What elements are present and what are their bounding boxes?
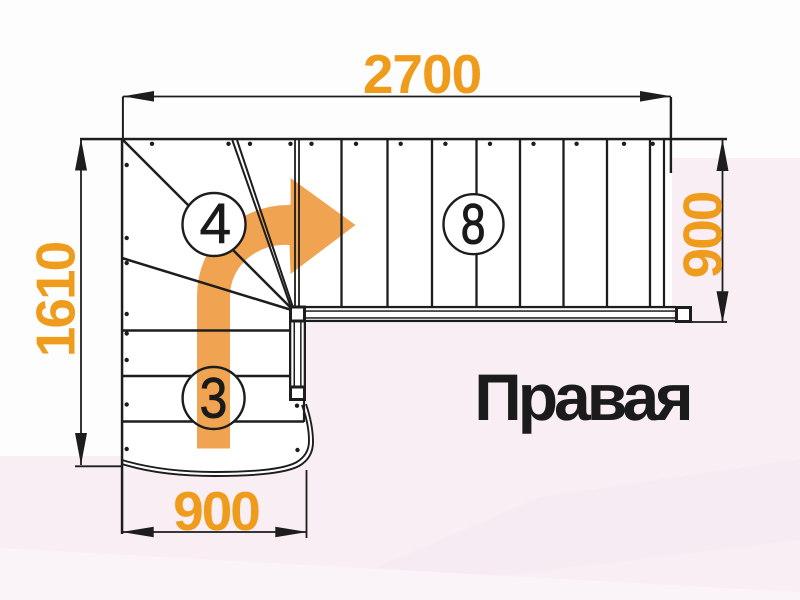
svg-text:4: 4: [199, 192, 231, 256]
svg-text:8: 8: [461, 193, 486, 257]
svg-text:900: 900: [173, 480, 259, 542]
svg-text:1610: 1610: [25, 242, 87, 357]
svg-text:900: 900: [672, 192, 734, 278]
svg-text:2700: 2700: [363, 43, 481, 105]
svg-text:Правая: Правая: [474, 360, 689, 434]
svg-text:3: 3: [200, 367, 228, 431]
